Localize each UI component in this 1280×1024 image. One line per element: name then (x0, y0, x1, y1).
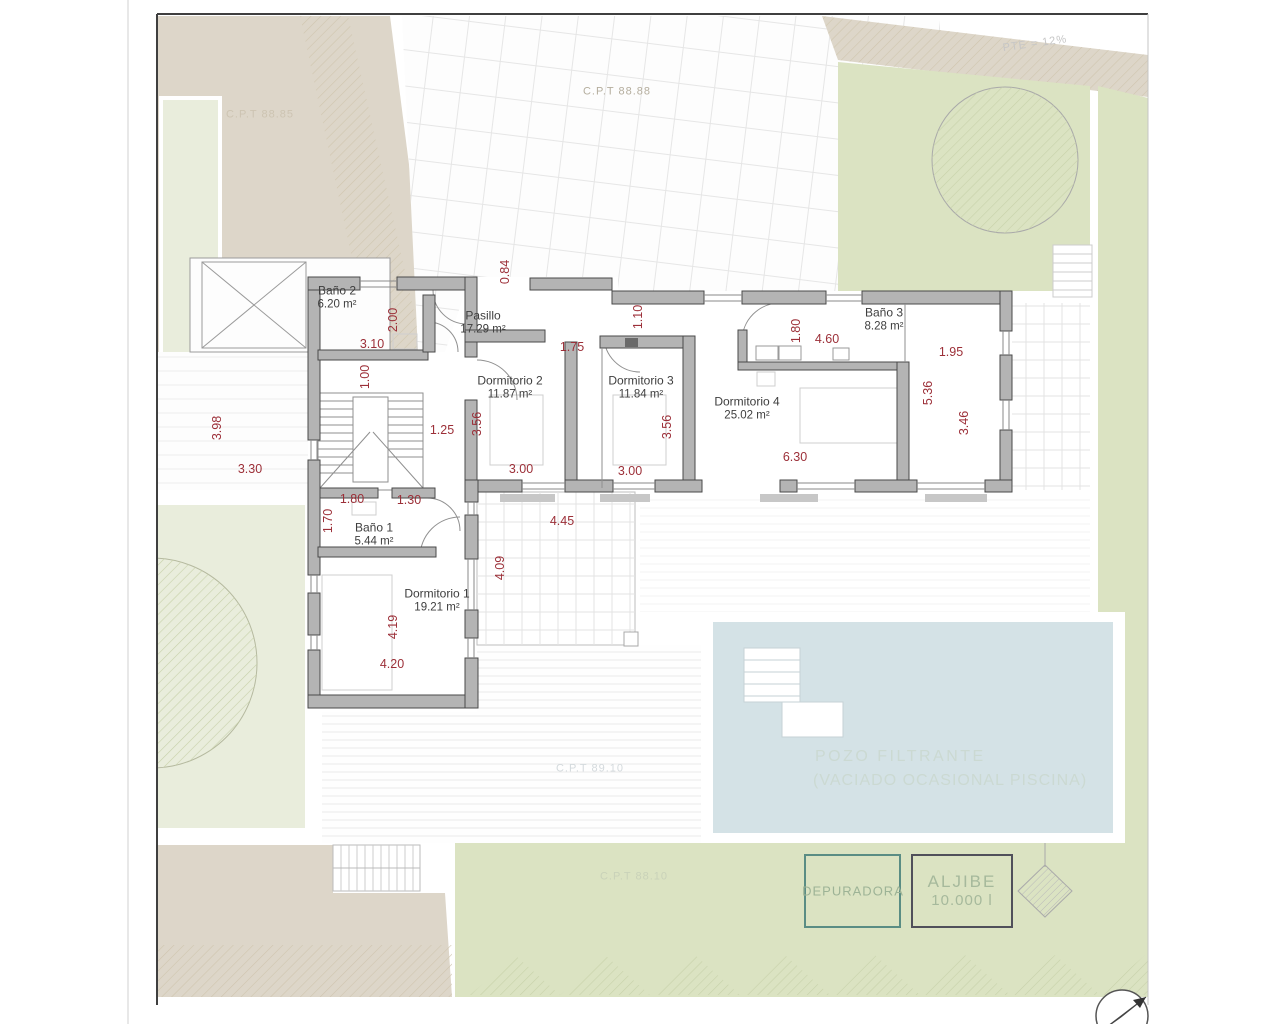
site-plan-drawing (0, 0, 1280, 1024)
floor-plan-page: POZO FILTRANTE (VACIADO OCASIONAL PISCIN… (0, 0, 1280, 1024)
terrace-east (1012, 303, 1090, 490)
tree-canopy-northeast (932, 87, 1078, 233)
forecourt (157, 352, 308, 490)
carport (190, 258, 390, 352)
road-steps (333, 845, 420, 891)
terrace-southwest (477, 492, 638, 646)
staircase (318, 393, 423, 490)
garden-steps-northeast (1053, 245, 1092, 297)
tree-canopy-west (47, 558, 257, 768)
closet-detail (602, 304, 905, 488)
